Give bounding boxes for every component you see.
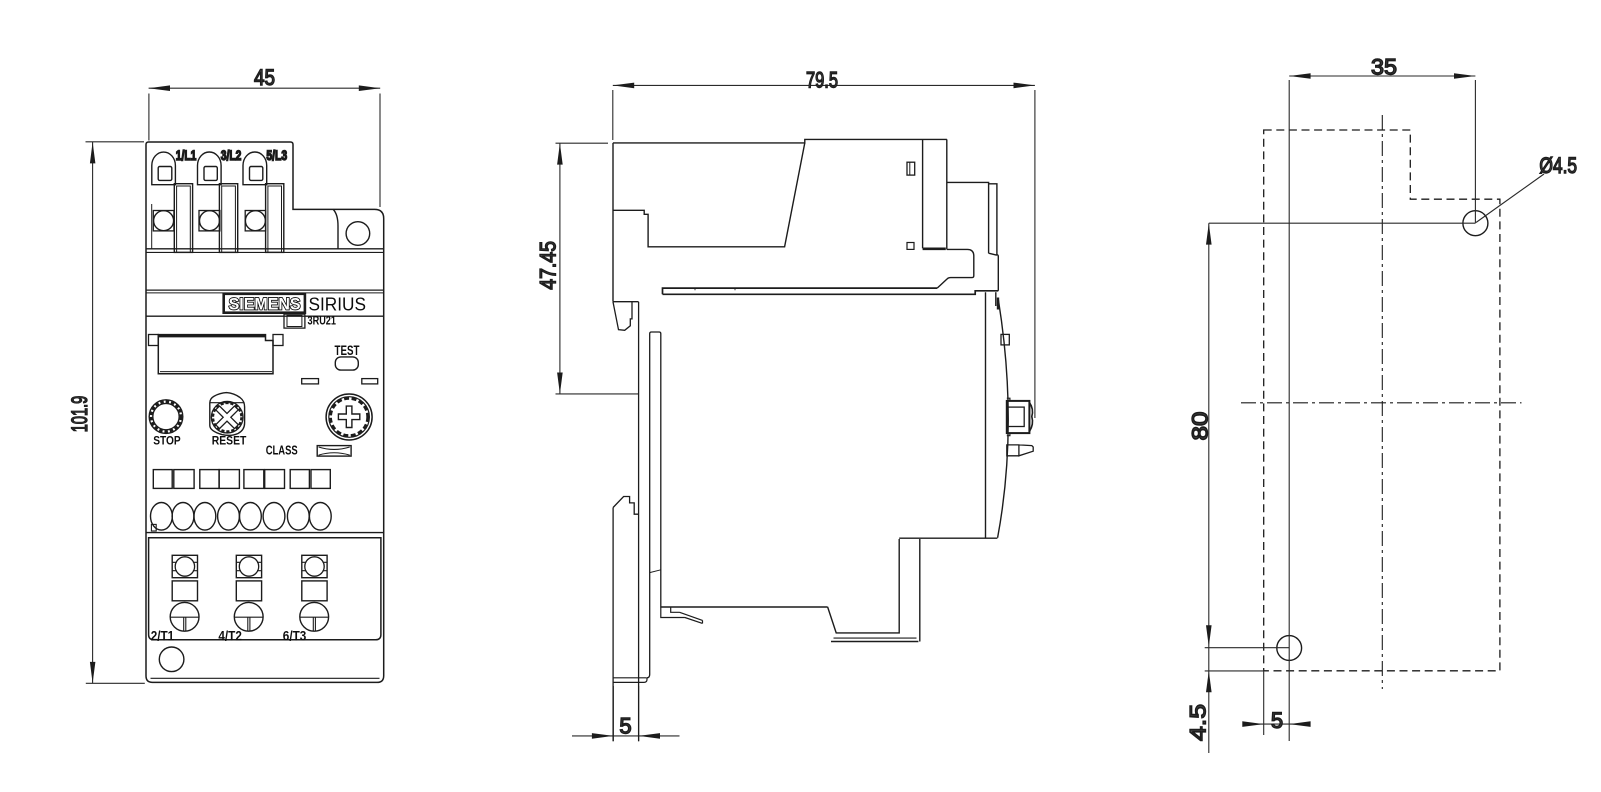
- svg-text:79.5: 79.5: [806, 67, 838, 92]
- svg-text:SIRIUS: SIRIUS: [309, 294, 367, 315]
- svg-text:RESET: RESET: [212, 434, 247, 448]
- svg-text:5: 5: [619, 714, 631, 739]
- svg-text:5/L3: 5/L3: [266, 148, 287, 163]
- svg-text:2/T1: 2/T1: [151, 629, 175, 644]
- svg-text:Ø4.5: Ø4.5: [1539, 153, 1577, 178]
- svg-text:4.5: 4.5: [1186, 704, 1211, 741]
- svg-text:101.9: 101.9: [67, 396, 92, 433]
- svg-text:3/L2: 3/L2: [221, 148, 242, 163]
- svg-text:47.45: 47.45: [536, 241, 561, 290]
- svg-text:CLASS: CLASS: [266, 444, 298, 458]
- svg-text:4/T2: 4/T2: [218, 629, 242, 644]
- svg-text:STOP: STOP: [153, 434, 181, 448]
- svg-text:45: 45: [254, 65, 275, 90]
- svg-text:35: 35: [1371, 55, 1397, 80]
- svg-text:80: 80: [1188, 412, 1213, 441]
- svg-text:5: 5: [1271, 708, 1283, 733]
- svg-text:3RU21: 3RU21: [308, 315, 337, 327]
- svg-text:6/T3: 6/T3: [283, 629, 307, 644]
- svg-text:TEST: TEST: [335, 343, 361, 358]
- svg-text:1/L1: 1/L1: [176, 148, 197, 163]
- svg-text:SIEMENS: SIEMENS: [229, 295, 301, 314]
